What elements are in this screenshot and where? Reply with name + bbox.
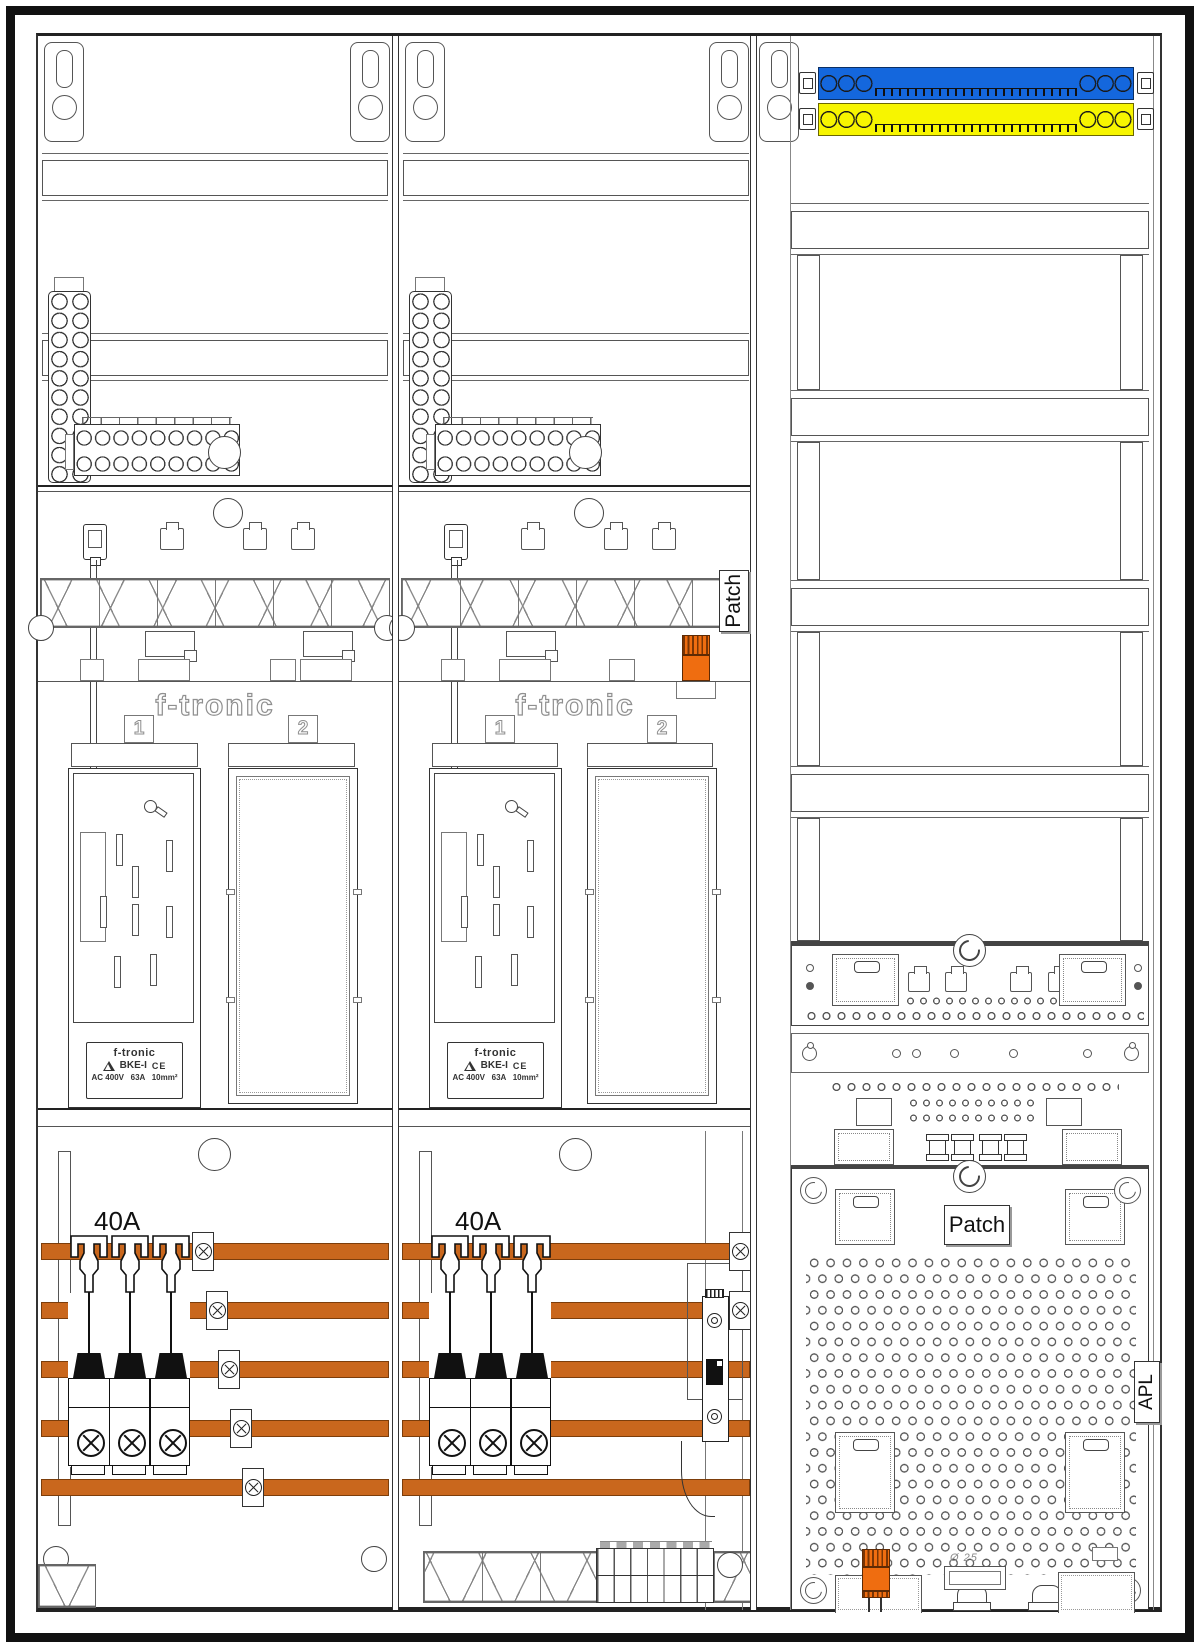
terminal-cap [415,277,445,292]
orange-connector-icon [682,655,710,681]
meter-slot-number: 2 [647,715,677,743]
busbar-fork-clamp-icon [472,1235,510,1293]
hole-row [907,1098,1037,1108]
bar-clip-icon [799,108,816,130]
side-post [797,442,820,580]
lattice-rail [401,578,749,628]
busbar-screw-clamp [192,1232,214,1271]
busbar-fork-clamp-icon [431,1235,469,1293]
busbar-screw-clamp [230,1409,252,1448]
screw-terminal-icon [71,1423,111,1463]
mounting-rail [791,203,1149,255]
rj45-jack-icon [160,528,184,550]
meter-mounting-field-2 [587,768,717,1104]
busbar-screw-clamp [729,1232,751,1271]
meter-mounting-field-1: f-tronic BKE-I CE AC 400V 63A 10mm² [429,768,562,1108]
panel-top-line [38,681,392,682]
meter-slot-number: 2 [288,715,318,743]
column-divider [750,36,757,1610]
label-ratings: AC 400V 63A 10mm² [87,1073,182,1082]
keyhole-icon [1124,1046,1139,1061]
busbar-fork-clamp-icon [70,1235,108,1293]
corner-bracket-icon [405,42,445,142]
side-post [1120,255,1143,390]
hole-row [804,1010,1144,1022]
section-separator [399,1108,751,1110]
type-label: f-tronic BKE-I CE AC 400V 63A 10mm² [447,1042,544,1099]
terminal-teeth [875,124,1077,132]
section-separator [38,1108,392,1110]
screw-terminal-icon [432,1423,472,1463]
device-wire [681,1441,715,1517]
terminal-endcap [426,434,435,470]
panel-cutout [834,1129,894,1165]
patch-rail-label: Patch [719,570,749,632]
breaker-body [68,1378,190,1466]
meter-field-column-middle: Patch f-tronic 1 2 [399,36,751,1610]
meter-plate [73,773,194,1023]
separator-line [38,491,392,492]
duct-block [441,659,465,681]
rj45-plug-icon [444,524,468,560]
lattice-rail [40,578,390,628]
grommet-icon [198,1138,231,1171]
rj45-jack-icon [945,972,967,992]
label-model: BKE-I [120,1060,147,1071]
separator-line [399,491,751,492]
vde-triangle-icon [464,1061,476,1071]
mounting-rail [403,333,749,381]
orange-connector-icon [862,1567,890,1591]
device-screw-icon [707,1313,722,1328]
sealing-screw-icon [505,800,518,813]
mounting-rail [791,766,1149,818]
bottom-frame [1058,1572,1135,1613]
cover-strip [228,743,355,767]
brand-logo: f-tronic [38,689,392,723]
corner-bracket-icon [709,42,749,142]
screw-terminal-icon [153,1423,193,1463]
breaker-toggle-icon [434,1353,466,1378]
cable-clamp-icon [954,1134,971,1161]
terminal-holes [1079,106,1132,133]
orange-connector-icon [862,1591,890,1598]
rj45-plug-icon [83,524,107,560]
cabinet-outline: f-tronic 1 2 f-tronic BKE-I [36,33,1162,1612]
cable-clip-icon [145,631,195,657]
mounting-rail [791,580,1149,632]
grommet-icon [213,498,243,528]
busbar-fork-clamp-icon [513,1235,551,1293]
terminal-cap [54,277,84,292]
lattice-rail [38,1564,96,1608]
three-pole-breaker [68,1235,190,1479]
single-pole-breaker [702,1296,729,1442]
panel-cutout-portrait [835,1432,895,1513]
separator-line [38,485,392,487]
meter-mounting-field-1: f-tronic BKE-I CE AC 400V 63A 10mm² [68,768,201,1108]
terminal-strip [596,1548,714,1603]
column-divider [392,36,399,1610]
hole-row [904,996,1074,1006]
cable-clamp-icon [1007,1134,1024,1161]
corner-bracket-icon [759,42,799,142]
busbar-PE [41,1479,389,1496]
bar-clip-icon [799,72,816,94]
vde-triangle-icon [103,1061,115,1071]
cable-clip-icon [506,631,556,657]
duct-block [80,659,104,681]
device-screw-icon [707,1409,722,1424]
rotary-latch-icon [953,934,986,967]
patch-panel: Patch Ø 25 [791,1165,1149,1610]
cover-strip [587,743,713,767]
cover-strip [432,743,558,767]
breaker-toggle-icon [516,1353,548,1378]
empty-field-frame [595,776,709,1096]
terminal-teeth [875,88,1077,96]
duct-block [609,659,635,681]
grommet-icon [559,1138,592,1171]
bar-clip-icon [1137,72,1154,94]
busbar-fork-clamp-icon [152,1235,190,1293]
panel-cutout [832,954,899,1006]
ce-mark: CE [513,1061,528,1071]
side-post [797,255,820,390]
meter-plate [434,773,555,1023]
hole-rail [791,1033,1149,1073]
orange-connector-icon [682,635,710,655]
label-ratings: AC 400V 63A 10mm² [448,1073,543,1082]
grommet-icon [28,615,54,641]
terminal-holes [820,70,873,97]
cable-clamp-icon [982,1134,999,1161]
meter-mounting-field-2 [228,768,358,1104]
corner-latch-icon [800,1177,827,1204]
hole-row [829,1081,1119,1093]
cable-gland [944,1566,1006,1590]
meter-slot-number: 1 [485,715,515,743]
corner-bracket-icon [350,42,390,142]
screw-terminal-icon [112,1423,152,1463]
panel-cutout-portrait [1065,1432,1125,1513]
busbar-screw-clamp [242,1468,264,1507]
corner-latch-icon [800,1577,827,1604]
sealing-screw-icon [144,800,157,813]
cover-strip [71,743,198,767]
busbar-fork-clamp-icon [111,1235,149,1293]
label-brand: f-tronic [448,1047,543,1059]
empty-field-frame [236,776,350,1096]
keyhole-icon [802,1046,817,1061]
rj45-jack-icon [604,528,628,550]
duct-block [300,659,352,681]
meter-slot-number: 1 [124,715,154,743]
screw-terminal-icon [514,1423,554,1463]
distribution-column-right: Patch Ø 25 [757,36,1160,1610]
label-model: BKE-I [481,1060,508,1071]
orange-connector-icon [862,1549,890,1567]
breaker-body [429,1378,551,1466]
brand-logo: f-tronic [399,689,751,723]
duct-block [499,659,551,681]
panel-cutout [1059,954,1126,1006]
grommet-icon [208,436,241,469]
busbar-screw-clamp [218,1350,240,1389]
cable-clamp-icon [929,1134,946,1161]
terminal-endcap [65,434,74,470]
type-label: f-tronic BKE-I CE AC 400V 63A 10mm² [86,1042,183,1099]
bar-clip-icon [1137,108,1154,130]
mounting-rail [42,153,388,201]
section-separator [399,1126,751,1127]
apl-label: APL [1134,1361,1160,1423]
busbar-screw-clamp [729,1291,751,1330]
grommet-icon [717,1552,743,1578]
hole-row [907,1113,1037,1123]
side-post [1120,632,1143,766]
grommet-icon [574,498,604,528]
breaker-rating: 40A [455,1206,501,1237]
small-fitting [1092,1547,1118,1561]
cabinet-drawing: f-tronic 1 2 f-tronic BKE-I [0,0,1200,1648]
breaker-toggle-icon [114,1353,146,1378]
side-post [1120,818,1143,941]
corner-latch-icon [361,1546,387,1572]
terminal-holes [1079,70,1132,97]
mounting-rail [403,153,749,201]
perforated-plate [806,1255,1136,1575]
corner-bracket-icon [44,42,84,142]
pe-terminal-bar [818,103,1134,136]
patch-panel-label: Patch [944,1205,1010,1245]
corner-latch-icon [1114,1177,1141,1204]
panel-cutout [835,1189,895,1245]
three-pole-breaker [429,1235,551,1479]
small-block [1046,1098,1082,1126]
meter-field-column-left: f-tronic 1 2 f-tronic BKE-I [38,36,392,1610]
breaker-rating: 40A [94,1206,140,1237]
duct-block [270,659,296,681]
side-post [797,818,820,941]
panel-top-line [399,681,751,682]
mounting-rail [791,390,1149,442]
panel-cutout [1062,1129,1122,1165]
rotary-latch-icon [953,1160,986,1193]
side-post [1120,442,1143,580]
neutral-terminal-bar [818,67,1134,100]
terminal-holes [820,106,873,133]
mounting-rail [42,333,388,381]
screw-terminal-icon [473,1423,513,1463]
grommet-icon [569,436,602,469]
rj45-jack-icon [1010,972,1032,992]
rj45-jack-icon [908,972,930,992]
section-separator [38,1126,392,1127]
breaker-toggle-icon [475,1353,507,1378]
label-brand: f-tronic [87,1047,182,1059]
breaker-toggle-icon [73,1353,105,1378]
rj45-jack-icon [291,528,315,550]
separator-line [399,485,751,487]
rj45-jack-icon [243,528,267,550]
breaker-toggle-icon [155,1353,187,1378]
side-post [797,632,820,766]
gland-size-label: Ø 25 [950,1552,978,1564]
rj45-jack-icon [652,528,676,550]
duct-block [138,659,190,681]
rj45-jack-icon [521,528,545,550]
small-block [856,1098,892,1126]
busbar-screw-clamp [206,1291,228,1330]
cable-clip-icon [303,631,353,657]
ce-mark: CE [152,1061,167,1071]
